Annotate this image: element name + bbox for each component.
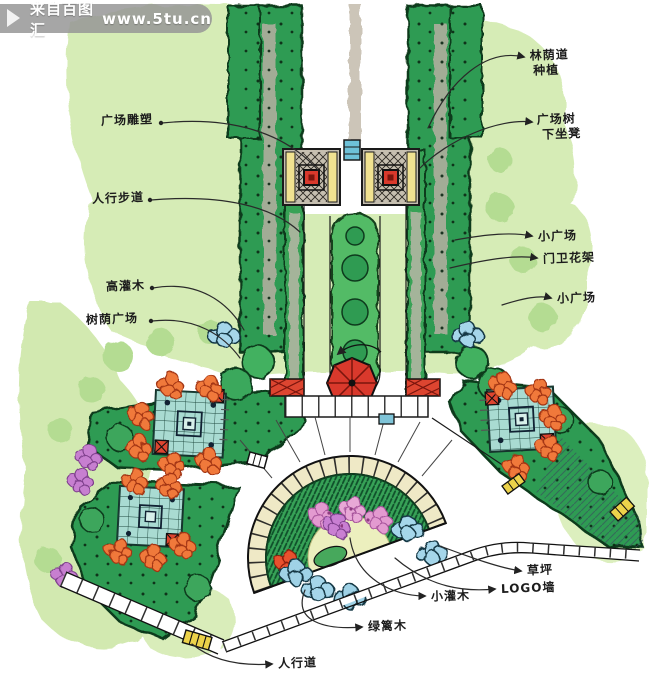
trellis-right (406, 379, 440, 396)
label-small-shrub: 小灌木 (431, 588, 471, 604)
watermark-site-name: 来自百图汇 (30, 0, 94, 40)
plaza-square-left (283, 149, 340, 205)
plaza-square-right (362, 149, 419, 205)
planter-pot (155, 440, 169, 454)
label-small-plaza-lower: 小广场 (557, 290, 597, 306)
label-pedestrian-walkway: 人行步道 (92, 190, 145, 207)
label-avenue-planting: 林荫道 种植 (529, 47, 569, 78)
road-center-path (349, 4, 361, 140)
label-gate-trellis: 门卫花架 (543, 250, 596, 267)
watermark-site-url: www.5tu.cn (102, 10, 212, 28)
label-small-plaza-upper: 小广场 (538, 228, 578, 244)
trellis-left (270, 379, 304, 396)
watermark-bar: 来自百图汇 www.5tu.cn (0, 4, 212, 33)
label-tall-shrub: 高灌木 (106, 278, 146, 294)
label-plaza-sculpture: 广场雕塑 (101, 112, 154, 129)
label-footpath: 人行道 (278, 655, 318, 671)
label-shaded-plaza: 树荫广场 (86, 311, 139, 328)
label-hedge: 绿篱木 (368, 618, 408, 634)
bench-blue-plaza (379, 414, 394, 424)
play-icon (7, 9, 20, 27)
label-lawn: 草坪 (527, 563, 554, 579)
label-plaza-tree-bench: 广场树 下坐凳 (536, 111, 581, 143)
landscape-plan-page: 林荫道 种植 广场树 下坐凳 小广场 门卫花架 小广场 草坪 LOGO墙 小灌木… (0, 0, 650, 694)
label-logo-wall: LOGO墙 (501, 580, 556, 597)
bench-blue-top (344, 140, 360, 160)
